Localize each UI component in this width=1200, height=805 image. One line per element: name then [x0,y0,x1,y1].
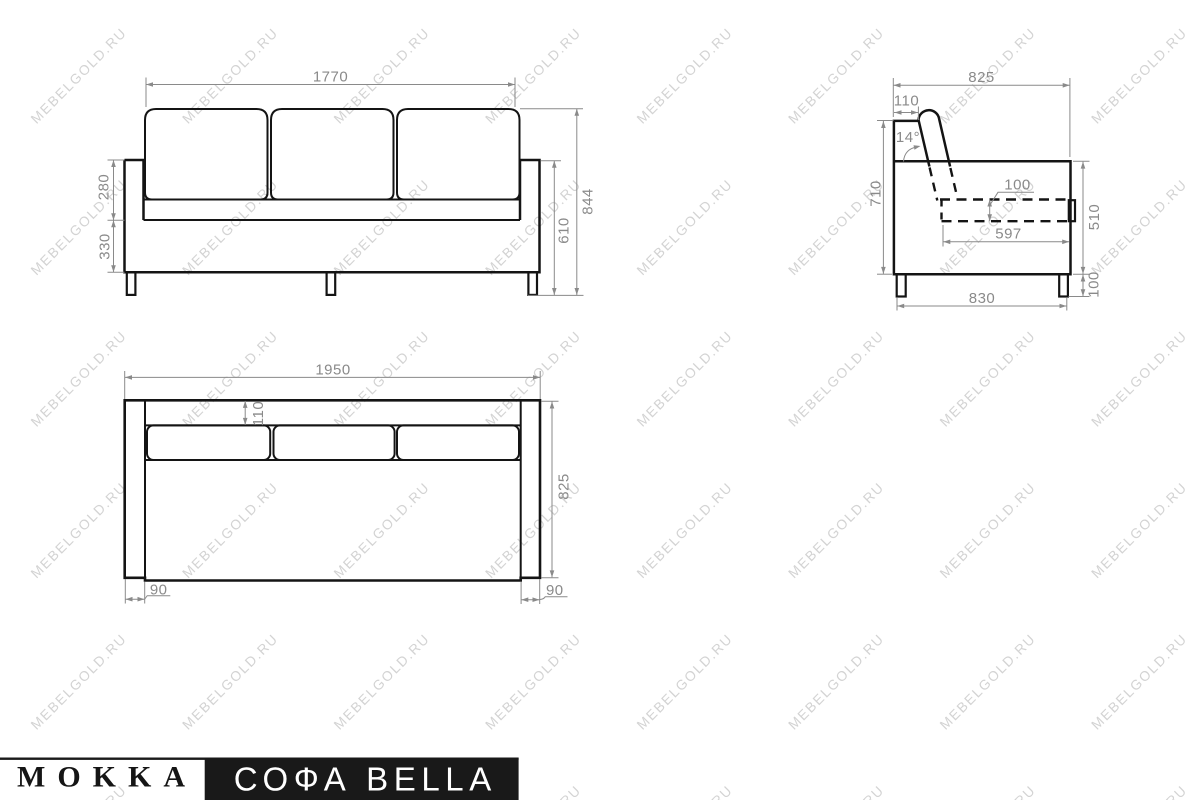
svg-text:610: 610 [556,217,573,244]
svg-text:330: 330 [97,233,114,260]
svg-text:90: 90 [546,582,564,599]
svg-text:100: 100 [1004,177,1031,194]
svg-text:14°: 14° [896,129,920,146]
svg-text:280: 280 [96,174,113,201]
svg-text:844: 844 [580,188,597,215]
svg-text:90: 90 [150,581,168,598]
svg-text:1950: 1950 [315,361,350,378]
svg-text:825: 825 [968,69,995,86]
svg-text:СОФА BELLA: СОФА BELLA [234,761,497,798]
svg-text:830: 830 [969,290,996,307]
svg-text:110: 110 [250,401,267,426]
svg-text:1770: 1770 [313,69,348,86]
svg-text:MOKKA: MOKKA [17,761,197,794]
svg-text:710: 710 [868,180,885,207]
svg-text:597: 597 [995,226,1022,243]
svg-text:100: 100 [1086,271,1103,298]
svg-text:510: 510 [1086,204,1103,231]
svg-text:825: 825 [555,473,572,500]
svg-text:110: 110 [894,93,919,110]
